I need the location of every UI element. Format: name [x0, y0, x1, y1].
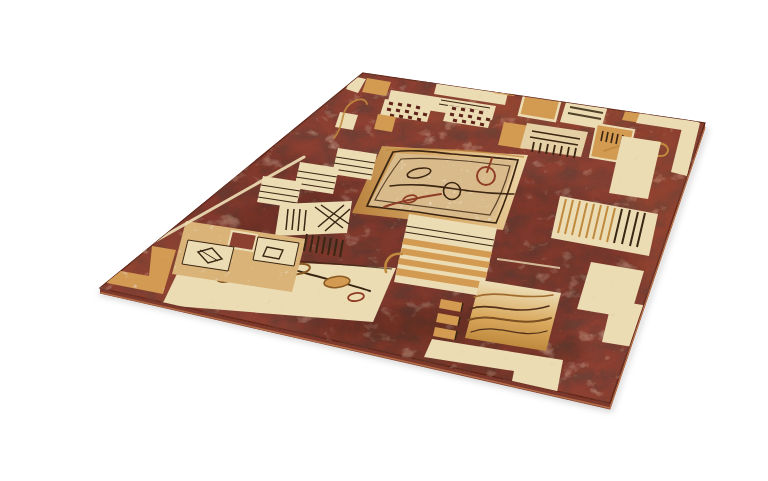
- product-photo: [0, 0, 768, 481]
- hatch-square: [275, 201, 352, 236]
- rug-product-photo: [0, 0, 768, 481]
